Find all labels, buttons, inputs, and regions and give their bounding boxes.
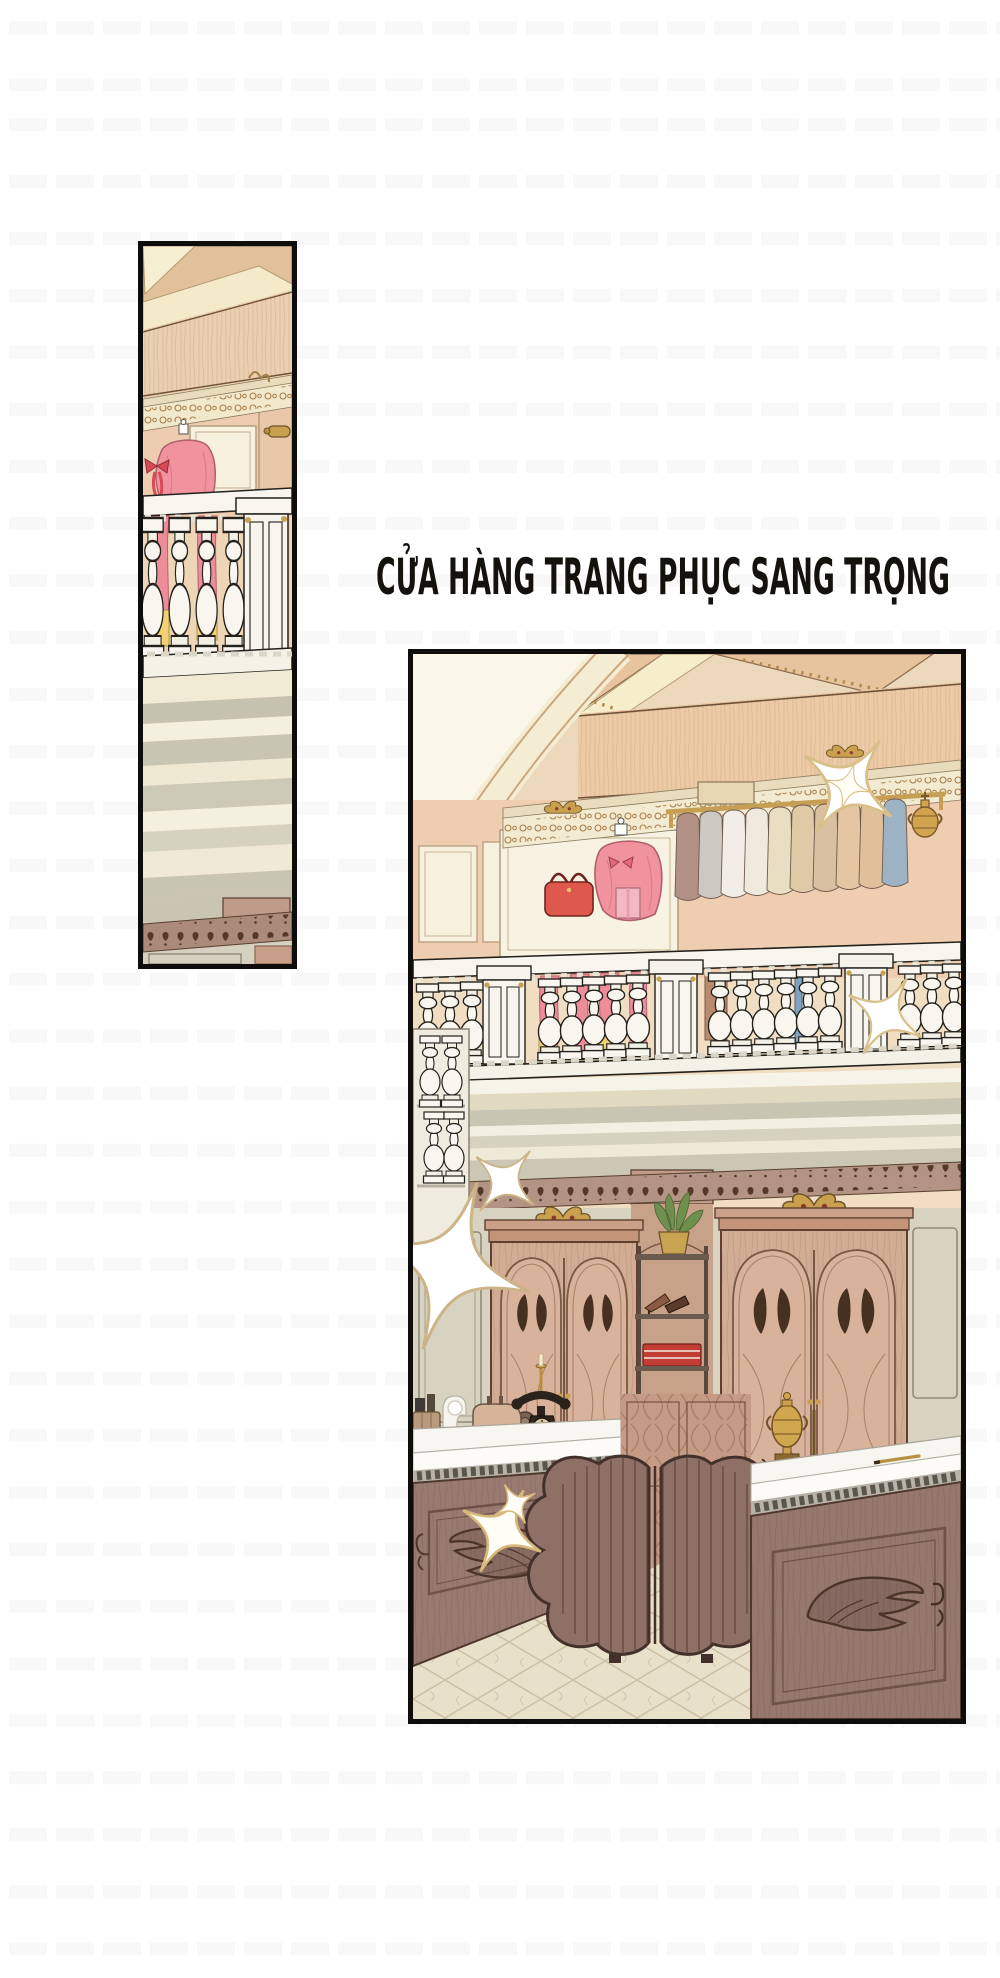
left-panel-art [143, 246, 292, 964]
main-panel [408, 649, 966, 1724]
balcony-pillar [236, 498, 292, 660]
left-molding-bands [143, 670, 292, 898]
page-canvas: CỬA HÀNG TRANG PHỤC SANG TRỌNG [0, 0, 1000, 1978]
left-ceiling [143, 246, 292, 398]
comic-page: { "page": { "kind": "manhwa-page", "back… [0, 0, 1000, 1978]
caption-text: CỬA HÀNG TRANG PHỤC SANG TRỌNG [376, 542, 950, 606]
left-panel [138, 241, 297, 969]
pilaster-cap [698, 782, 754, 804]
left-lower-wall [143, 890, 292, 964]
folded-garments [675, 799, 908, 901]
clothes-rack [666, 792, 945, 901]
main-panel-art [413, 654, 961, 1719]
scene-caption: CỬA HÀNG TRANG PHỤC SANG TRỌNG [368, 548, 958, 610]
caption-art: CỬA HÀNG TRANG PHỤC SANG TRỌNG [368, 548, 958, 610]
molding-bands [413, 1068, 961, 1162]
flower-screen [526, 1456, 784, 1663]
folded-red-clothes [643, 1344, 701, 1366]
